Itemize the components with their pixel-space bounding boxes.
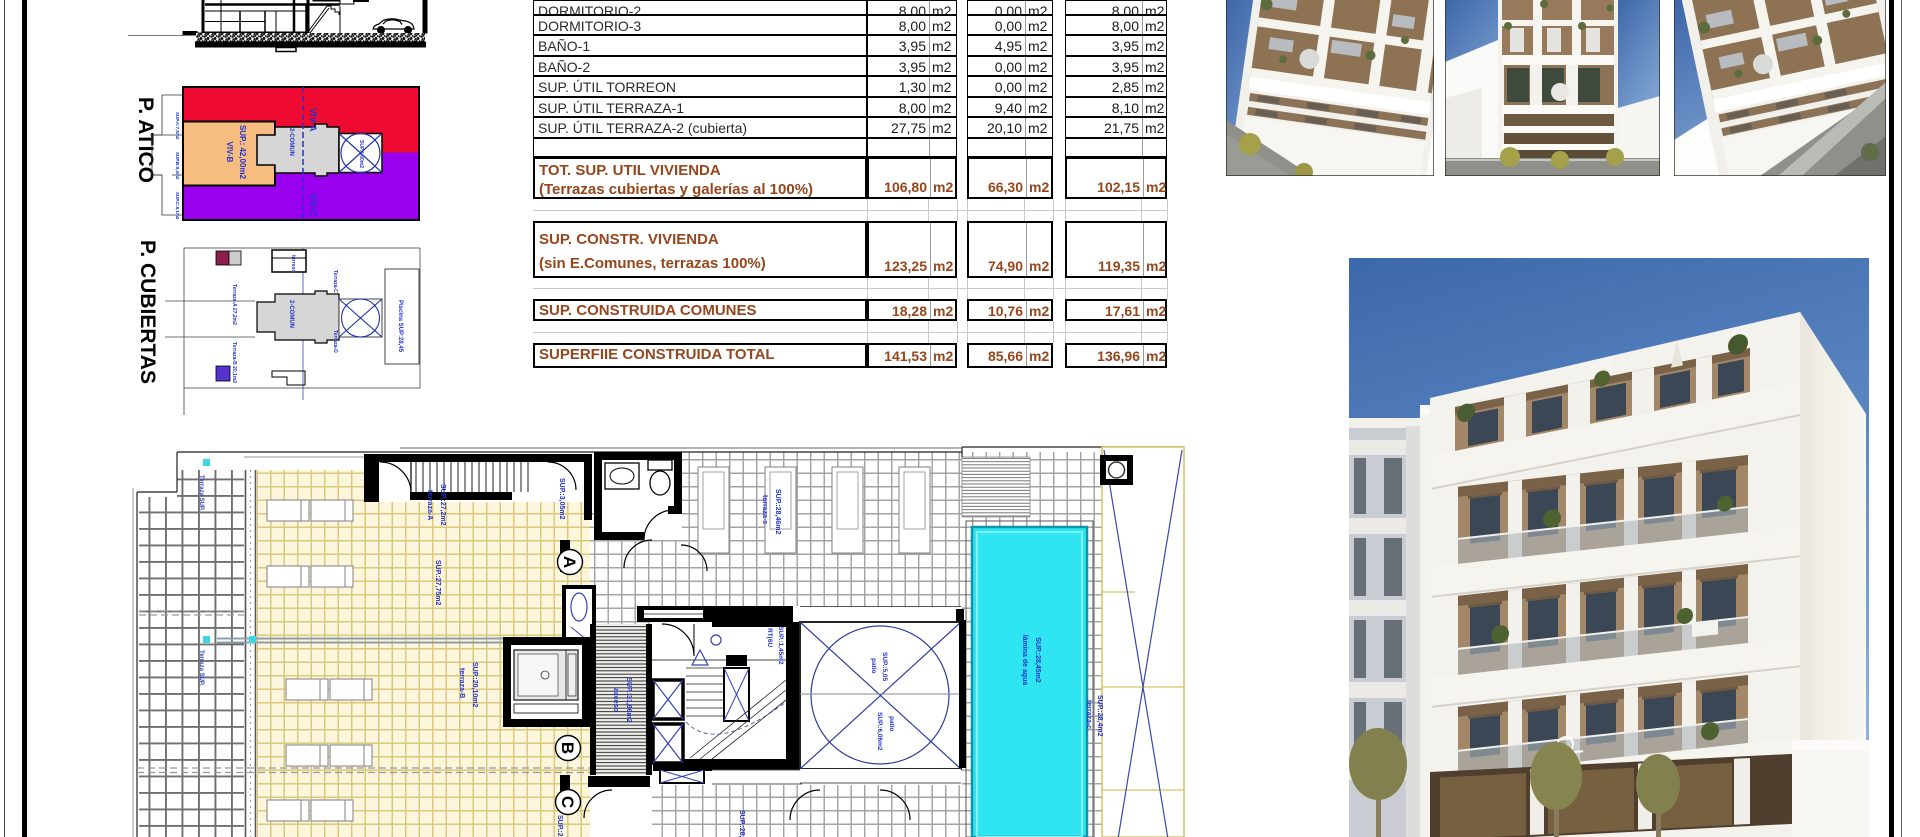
svg-text:Terraza SUP.: Terraza SUP. xyxy=(198,650,204,686)
svg-text:patio: patio xyxy=(888,716,895,732)
svg-text:acceso: acceso xyxy=(612,688,619,712)
svg-text:Terraza-A 27,2m2: Terraza-A 27,2m2 xyxy=(231,284,237,325)
svg-text:lámina de agua: lámina de agua xyxy=(1021,635,1028,686)
svg-text:SUP.:28,4m2: SUP.:28,4m2 xyxy=(1096,695,1103,737)
svg-text:SUP.:28,45m2: SUP.:28,45m2 xyxy=(1034,637,1041,683)
svg-text:P. CUBIERTAS: P. CUBIERTAS xyxy=(136,240,159,384)
svg-text:SUP.:27,2m2: SUP.:27,2m2 xyxy=(439,484,446,526)
svg-text:SUP.:2: SUP.:2 xyxy=(556,815,563,837)
svg-text:C: C xyxy=(558,796,577,808)
svg-text:SUP.A:7,5m2: SUP.A:7,5m2 xyxy=(175,112,180,140)
svg-text:SUP.C:8,1m2: SUP.C:8,1m2 xyxy=(175,192,180,220)
svg-text:torreon: torreon xyxy=(290,255,296,273)
svg-text:P. ATICO: P. ATICO xyxy=(134,97,157,183)
svg-text:Terraza-C: Terraza-C xyxy=(332,270,338,293)
svg-text:terraza-c: terraza-c xyxy=(1085,700,1092,729)
svg-text:patio: patio xyxy=(870,658,877,674)
svg-text:VIV-B: VIV-B xyxy=(225,142,234,163)
svg-text:Terraza-D: Terraza-D xyxy=(332,330,338,353)
svg-text:B: B xyxy=(558,742,577,754)
svg-text:SUP.:5,05: SUP.:5,05 xyxy=(881,652,888,682)
svg-text:Terraza-B 20,1m2: Terraza-B 20,1m2 xyxy=(231,342,237,383)
svg-text:SUP.:27,75m2: SUP.:27,75m2 xyxy=(434,560,441,606)
svg-text:terraza-A: terraza-A xyxy=(426,490,433,520)
svg-text:2-COMUN: 2-COMUN xyxy=(288,128,294,156)
svg-text:SUP.: 42,00m2: SUP.: 42,00m2 xyxy=(238,125,247,180)
svg-text:A: A xyxy=(560,556,579,568)
svg-text:SUP.6,00m2: SUP.6,00m2 xyxy=(358,140,364,168)
svg-text:VIV-C: VIV-C xyxy=(308,193,318,217)
svg-text:SUP.:20,10m2: SUP.:20,10m2 xyxy=(471,662,478,708)
svg-text:SUP.:1,45m2: SUP.:1,45m2 xyxy=(777,626,784,665)
svg-text:terraza-s: terraza-s xyxy=(761,495,768,524)
svg-text:SUP.:6,06m2: SUP.:6,06m2 xyxy=(876,712,883,751)
svg-text:RT(6U: RT(6U xyxy=(766,628,773,647)
svg-text:SUP.B:9,4m2: SUP.B:9,4m2 xyxy=(175,152,180,180)
svg-text:SUP.:28,4: SUP.:28,4 xyxy=(738,810,745,837)
svg-text:SUP.:3,05m2: SUP.:3,05m2 xyxy=(558,478,565,520)
svg-text:SUP.:31,96m2: SUP.:31,96m2 xyxy=(625,677,632,723)
svg-text:VIV-A: VIV-A xyxy=(308,108,318,132)
svg-text:SUP.:28,46m2: SUP.:28,46m2 xyxy=(774,489,781,535)
svg-text:2-COMUN: 2-COMUN xyxy=(288,300,294,328)
svg-text:terraza-B: terraza-B xyxy=(458,668,465,698)
svg-text:Terraza SUP.: Terraza SUP. xyxy=(198,475,204,511)
svg-text:Piscina SUP:28,45: Piscina SUP:28,45 xyxy=(397,300,403,353)
